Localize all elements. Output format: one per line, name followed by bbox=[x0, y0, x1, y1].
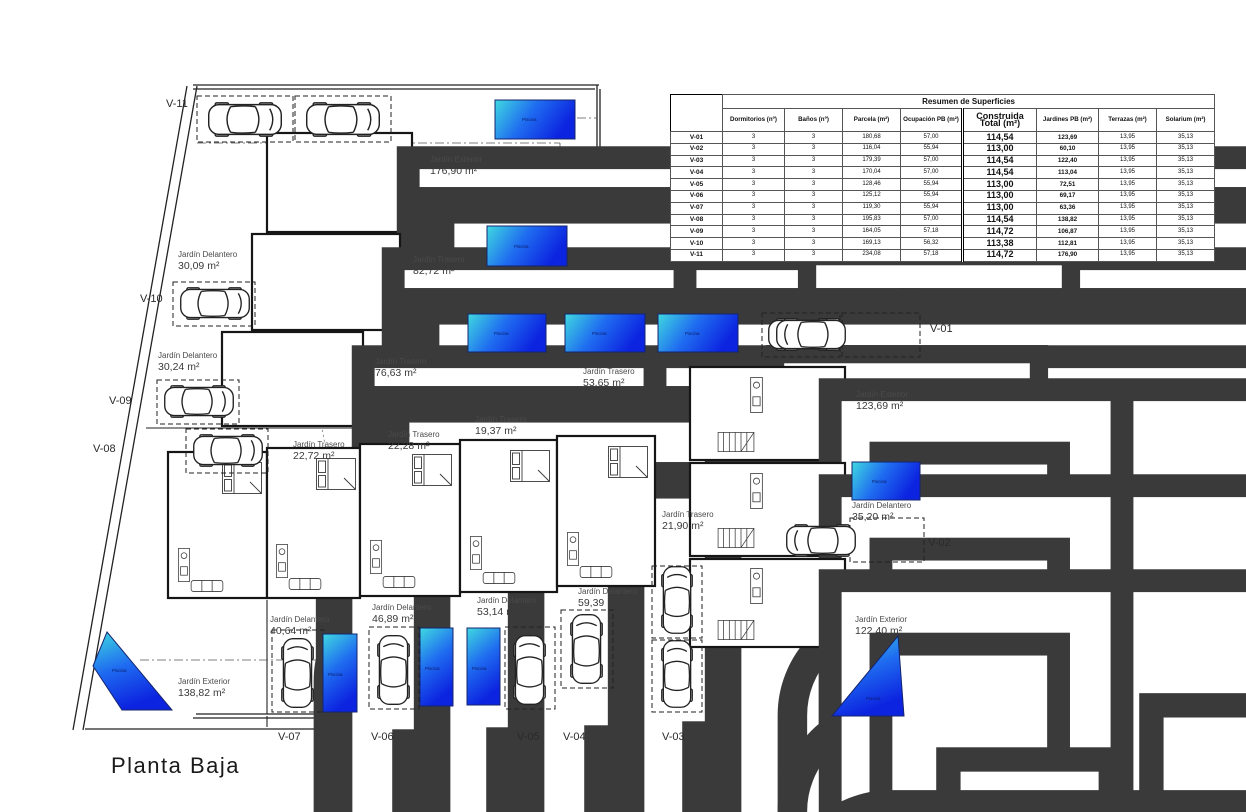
svg-text:Jardín Trasero: Jardín Trasero bbox=[475, 415, 527, 424]
lot-label-v07: V-07 bbox=[278, 731, 301, 743]
table-cell: 170,04 bbox=[843, 167, 901, 179]
svg-text:76,63 m²: 76,63 m² bbox=[375, 367, 417, 379]
table-cell: 113,00 bbox=[963, 179, 1037, 191]
table-cell: 3 bbox=[723, 249, 785, 261]
car-icon bbox=[282, 639, 313, 708]
lot-label-v11: V-11 bbox=[166, 98, 188, 110]
car-icon bbox=[181, 288, 250, 319]
svg-text:82,72 m²: 82,72 m² bbox=[413, 265, 455, 277]
table-title: Resumen de Superficies bbox=[723, 95, 1215, 109]
pool: Piscina bbox=[852, 462, 920, 500]
col-header: Terrazas (m²) bbox=[1099, 109, 1157, 132]
pool-label: Piscina bbox=[425, 666, 440, 671]
svg-text:59,39 m²: 59,39 m² bbox=[578, 597, 620, 609]
table-cell: 3 bbox=[785, 132, 843, 144]
car-icon bbox=[165, 386, 234, 417]
lot-label-v04: V-04 bbox=[563, 731, 586, 743]
table-cell: 35,13 bbox=[1157, 143, 1215, 155]
table-cell: 106,87 bbox=[1037, 226, 1099, 238]
table-row: V-0133180,6857,00114,54123,6913,9535,13 bbox=[671, 132, 1215, 144]
table-cell: 3 bbox=[785, 143, 843, 155]
row-label: V-10 bbox=[671, 238, 723, 250]
row-label: V-07 bbox=[671, 202, 723, 214]
table-cell: 13,95 bbox=[1099, 132, 1157, 144]
table-cell: 3 bbox=[723, 202, 785, 214]
table-row: V-0233116,0455,94113,0060,1013,9535,13 bbox=[671, 143, 1215, 155]
table-row: V-0933164,0557,18114,72106,8713,9535,13 bbox=[671, 226, 1215, 238]
table-cell: 55,94 bbox=[901, 190, 963, 202]
table-cell: 72,51 bbox=[1037, 179, 1099, 191]
table-row: V-0533128,4655,94113,0072,5113,9535,13 bbox=[671, 179, 1215, 191]
row-label: V-11 bbox=[671, 249, 723, 261]
svg-text:138,82 m²: 138,82 m² bbox=[178, 687, 226, 699]
table-row: V-0633125,1255,94113,0069,1713,9535,13 bbox=[671, 190, 1215, 202]
table-cell: 60,10 bbox=[1037, 143, 1099, 155]
svg-text:Jardín Delantero: Jardín Delantero bbox=[852, 501, 912, 510]
car-icon bbox=[209, 103, 282, 136]
pool-label: Piscina bbox=[522, 117, 537, 122]
svg-text:Jardín Trasero: Jardín Trasero bbox=[413, 255, 465, 264]
table-cell: 128,46 bbox=[843, 179, 901, 191]
table-cell: 57,00 bbox=[901, 132, 963, 144]
svg-text:Jardín Trasero: Jardín Trasero bbox=[388, 430, 440, 439]
table-cell: 3 bbox=[785, 155, 843, 167]
col-header: Dormitorios (nº) bbox=[723, 109, 785, 132]
pool-label: Piscina bbox=[866, 696, 881, 701]
car-icon bbox=[662, 567, 692, 633]
table-header-row: Dormitorios (nº) Baños (nº) Parcela (m²)… bbox=[671, 109, 1215, 132]
table-cell: 13,95 bbox=[1099, 190, 1157, 202]
garden-label: Jardín Exterior138,82 m² bbox=[178, 677, 230, 699]
svg-text:Jardín Exterior: Jardín Exterior bbox=[856, 390, 908, 399]
pool-label: Piscina bbox=[685, 331, 700, 336]
svg-text:Jardín Trasero: Jardín Trasero bbox=[662, 510, 714, 519]
table-cell: 55,94 bbox=[901, 202, 963, 214]
svg-text:Jardín Trasero: Jardín Trasero bbox=[583, 367, 635, 376]
lot-label-v09: V-09 bbox=[109, 395, 132, 407]
table-cell: 176,90 bbox=[1037, 249, 1099, 261]
table-cell: 57,18 bbox=[901, 226, 963, 238]
table-corner-cell bbox=[671, 95, 723, 132]
table-cell: 35,13 bbox=[1157, 179, 1215, 191]
table-cell: 114,72 bbox=[963, 226, 1037, 238]
summary-table: Resumen de Superficies Dormitorios (nº) … bbox=[670, 94, 1215, 262]
svg-text:Jardín Exterior: Jardín Exterior bbox=[855, 615, 907, 624]
col-header: Solarium (m²) bbox=[1157, 109, 1215, 132]
svg-text:22,72 m²: 22,72 m² bbox=[293, 450, 335, 462]
table-cell: 138,82 bbox=[1037, 214, 1099, 226]
svg-text:Jardín Delantero: Jardín Delantero bbox=[578, 587, 638, 596]
pool-label: Piscina bbox=[514, 244, 529, 249]
lot-label-v10: V-10 bbox=[140, 293, 163, 305]
table-cell: 114,54 bbox=[963, 214, 1037, 226]
table-cell: 3 bbox=[723, 226, 785, 238]
table-cell: 114,72 bbox=[963, 249, 1037, 261]
lot-label-v02: V-02 bbox=[928, 537, 951, 549]
car-icon bbox=[777, 319, 846, 350]
car-icon bbox=[514, 636, 545, 705]
pool: Piscina bbox=[468, 314, 546, 352]
table-cell: 123,69 bbox=[1037, 132, 1099, 144]
table-cell: 13,95 bbox=[1099, 143, 1157, 155]
table-cell: 3 bbox=[785, 238, 843, 250]
lot-label-v01: V-01 bbox=[930, 323, 953, 335]
summary-table-container: Resumen de Superficies Dormitorios (nº) … bbox=[670, 94, 1202, 262]
svg-text:Jardín Trasero: Jardín Trasero bbox=[293, 440, 345, 449]
row-label: V-03 bbox=[671, 155, 723, 167]
table-cell: 3 bbox=[723, 167, 785, 179]
table-cell: 113,00 bbox=[963, 202, 1037, 214]
table-cell: 13,95 bbox=[1099, 238, 1157, 250]
row-label: V-05 bbox=[671, 179, 723, 191]
table-cell: 3 bbox=[785, 190, 843, 202]
pool: Piscina bbox=[495, 100, 575, 139]
svg-text:Jardín Delantero: Jardín Delantero bbox=[372, 603, 432, 612]
lot-label-v06: V-06 bbox=[371, 731, 394, 743]
table-cell: 113,00 bbox=[963, 190, 1037, 202]
table-cell: 55,94 bbox=[901, 179, 963, 191]
garden-label: Jardín Delantero30,24 m² bbox=[158, 351, 218, 373]
svg-text:53,14 m²: 53,14 m² bbox=[477, 606, 519, 618]
table-cell: 179,39 bbox=[843, 155, 901, 167]
svg-text:123,69 m²: 123,69 m² bbox=[856, 400, 904, 412]
table-cell: 169,13 bbox=[843, 238, 901, 250]
row-label: V-04 bbox=[671, 167, 723, 179]
table-cell: 69,17 bbox=[1037, 190, 1099, 202]
pool: Piscina bbox=[323, 634, 357, 712]
garden-label: Jardín Exterior122,40 m² bbox=[855, 615, 907, 637]
svg-text:Jardín Trasero: Jardín Trasero bbox=[375, 357, 427, 366]
table-cell: 3 bbox=[723, 190, 785, 202]
table-cell: 13,95 bbox=[1099, 214, 1157, 226]
col-header: Jardines PB (m²) bbox=[1037, 109, 1099, 132]
col-header: Baños (nº) bbox=[785, 109, 843, 132]
table-cell: 112,81 bbox=[1037, 238, 1099, 250]
car-icon bbox=[787, 525, 856, 556]
table-cell: 56,32 bbox=[901, 238, 963, 250]
col-header: Construida Total (m²) bbox=[963, 109, 1037, 132]
table-cell: 3 bbox=[723, 214, 785, 226]
car-icon bbox=[378, 636, 409, 705]
table-cell: 13,95 bbox=[1099, 167, 1157, 179]
table-cell: 35,13 bbox=[1157, 155, 1215, 167]
col-header: Parcela (m²) bbox=[843, 109, 901, 132]
table-cell: 195,83 bbox=[843, 214, 901, 226]
svg-text:19,37 m²: 19,37 m² bbox=[475, 425, 517, 437]
table-cell: 13,95 bbox=[1099, 155, 1157, 167]
svg-text:46,89 m²: 46,89 m² bbox=[372, 613, 414, 625]
table-cell: 57,00 bbox=[901, 155, 963, 167]
table-cell: 3 bbox=[723, 179, 785, 191]
table-cell: 3 bbox=[723, 143, 785, 155]
row-label: V-01 bbox=[671, 132, 723, 144]
row-label: V-09 bbox=[671, 226, 723, 238]
garden-label: Jardín Delantero30,09 m² bbox=[178, 250, 238, 272]
lot-label-v08: V-08 bbox=[93, 443, 116, 455]
table-cell: 13,95 bbox=[1099, 202, 1157, 214]
col-header: Ocupación PB (m²) bbox=[901, 109, 963, 132]
svg-text:122,40 m²: 122,40 m² bbox=[855, 625, 903, 637]
table-cell: 113,04 bbox=[1037, 167, 1099, 179]
table-cell: 35,13 bbox=[1157, 226, 1215, 238]
table-cell: 13,95 bbox=[1099, 179, 1157, 191]
table-cell: 114,54 bbox=[963, 167, 1037, 179]
pool: Piscina bbox=[93, 632, 172, 710]
svg-text:40,64 m²: 40,64 m² bbox=[270, 625, 312, 637]
svg-text:Jardín Delantero: Jardín Delantero bbox=[158, 351, 218, 360]
table-cell: 57,00 bbox=[901, 167, 963, 179]
pool: Piscina bbox=[565, 314, 645, 352]
pool: Piscina bbox=[487, 226, 567, 266]
car-icon bbox=[571, 615, 602, 684]
table-cell: 234,08 bbox=[843, 249, 901, 261]
row-label: V-06 bbox=[671, 190, 723, 202]
pool-label: Piscina bbox=[472, 666, 487, 671]
table-cell: 35,13 bbox=[1157, 167, 1215, 179]
pool: Piscina bbox=[420, 628, 453, 706]
table-cell: 35,13 bbox=[1157, 132, 1215, 144]
garden-label: Jardín Exterior176,90 m² bbox=[430, 155, 482, 177]
svg-text:30,24 m²: 30,24 m² bbox=[158, 361, 200, 373]
page-title: Planta Baja bbox=[111, 753, 240, 779]
svg-text:35,20 m²: 35,20 m² bbox=[852, 511, 894, 523]
svg-text:176,90 m²: 176,90 m² bbox=[430, 165, 478, 177]
table-cell: 13,95 bbox=[1099, 249, 1157, 261]
table-cell: 57,18 bbox=[901, 249, 963, 261]
table-cell: 164,05 bbox=[843, 226, 901, 238]
svg-text:Jardín Exterior: Jardín Exterior bbox=[178, 677, 230, 686]
svg-text:53,65 m²: 53,65 m² bbox=[583, 377, 625, 389]
table-cell: 180,68 bbox=[843, 132, 901, 144]
row-label: V-08 bbox=[671, 214, 723, 226]
pool: Piscina bbox=[467, 628, 500, 705]
table-cell: 3 bbox=[785, 226, 843, 238]
table-cell: 3 bbox=[785, 167, 843, 179]
car-icon bbox=[662, 641, 692, 707]
page: { "title": "Planta Baja", "table": { "ti… bbox=[0, 0, 1246, 812]
table-cell: 35,13 bbox=[1157, 202, 1215, 214]
pool-label: Piscina bbox=[592, 331, 607, 336]
pool-label: Piscina bbox=[494, 331, 509, 336]
table-cell: 125,12 bbox=[843, 190, 901, 202]
table-row: V-0433170,0457,00114,54113,0413,9535,13 bbox=[671, 167, 1215, 179]
table-cell: 119,30 bbox=[843, 202, 901, 214]
table-cell: 122,40 bbox=[1037, 155, 1099, 167]
table-cell: 3 bbox=[785, 249, 843, 261]
table-cell: 63,36 bbox=[1037, 202, 1099, 214]
svg-text:22,28 m²: 22,28 m² bbox=[388, 440, 430, 452]
table-cell: 3 bbox=[723, 155, 785, 167]
table-cell: 116,04 bbox=[843, 143, 901, 155]
summary-table-body: V-0133180,6857,00114,54123,6913,9535,13V… bbox=[671, 132, 1215, 262]
table-row: V-1133234,0857,18114,72176,9013,9535,13 bbox=[671, 249, 1215, 261]
table-cell: 3 bbox=[785, 214, 843, 226]
svg-text:Jardín Delantero: Jardín Delantero bbox=[477, 596, 537, 605]
pool-label: Piscina bbox=[112, 668, 127, 673]
lot-label-v05: V-05 bbox=[517, 731, 540, 743]
table-cell: 13,95 bbox=[1099, 226, 1157, 238]
table-cell: 55,94 bbox=[901, 143, 963, 155]
svg-text:Jardín Delantero: Jardín Delantero bbox=[178, 250, 238, 259]
pool-label: Piscina bbox=[872, 479, 887, 484]
svg-text:Jardín Exterior: Jardín Exterior bbox=[430, 155, 482, 164]
garden-label: Jardín Exterior123,69 m² bbox=[856, 390, 908, 412]
table-cell: 114,54 bbox=[963, 132, 1037, 144]
table-cell: 3 bbox=[723, 132, 785, 144]
table-cell: 3 bbox=[723, 238, 785, 250]
table-row: V-0733119,3055,94113,0063,3613,9535,13 bbox=[671, 202, 1215, 214]
pool: Piscina bbox=[658, 314, 738, 352]
car-icon bbox=[307, 103, 380, 136]
table-cell: 114,54 bbox=[963, 155, 1037, 167]
table-cell: 3 bbox=[785, 179, 843, 191]
table-cell: 113,00 bbox=[963, 143, 1037, 155]
table-row: V-1033169,1356,32113,38112,8113,9535,13 bbox=[671, 238, 1215, 250]
lot-label-v03: V-03 bbox=[662, 731, 685, 743]
table-cell: 35,13 bbox=[1157, 238, 1215, 250]
table-cell: 57,00 bbox=[901, 214, 963, 226]
svg-text:21,90 m²: 21,90 m² bbox=[662, 520, 704, 532]
svg-text:30,09 m²: 30,09 m² bbox=[178, 260, 220, 272]
table-cell: 35,13 bbox=[1157, 190, 1215, 202]
table-row: V-0333179,3957,00114,54122,4013,9535,13 bbox=[671, 155, 1215, 167]
table-row: V-0833195,8357,00114,54138,8213,9535,13 bbox=[671, 214, 1215, 226]
row-label: V-02 bbox=[671, 143, 723, 155]
table-cell: 113,38 bbox=[963, 238, 1037, 250]
car-icon bbox=[194, 435, 263, 466]
svg-text:Jardín Delantero: Jardín Delantero bbox=[270, 615, 330, 624]
table-cell: 3 bbox=[785, 202, 843, 214]
table-cell: 35,13 bbox=[1157, 214, 1215, 226]
table-cell: 35,13 bbox=[1157, 249, 1215, 261]
pool-label: Piscina bbox=[328, 672, 343, 677]
